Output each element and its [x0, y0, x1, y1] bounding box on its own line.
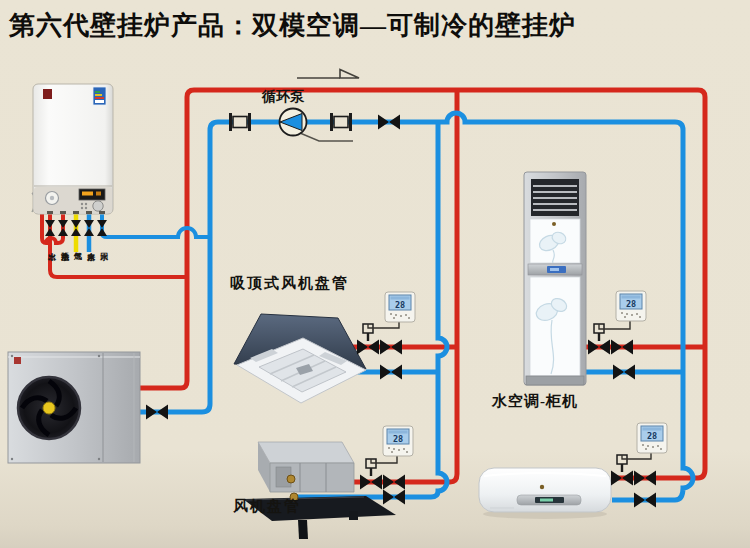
- floor-unit-label: 水空调-柜机: [492, 392, 578, 411]
- thermostat-fan-coil: 28: [383, 426, 413, 456]
- boiler-port-valves: [45, 220, 107, 236]
- thermostat-cassette: 28: [385, 292, 415, 322]
- thermostat-wall-unit: 28: [637, 423, 667, 453]
- thermostat-temp: 28: [626, 299, 636, 309]
- outdoor-unit-logo: [14, 357, 21, 364]
- thermostat-temp: 28: [647, 431, 657, 441]
- fan-coil-label: 风机盘管: [233, 497, 301, 516]
- flow-direction-arrow: [297, 70, 359, 79]
- wall-mounted-ac-unit: [479, 468, 611, 519]
- wall-hung-boiler: [33, 84, 113, 214]
- outdoor-heat-pump-unit: [8, 352, 140, 463]
- pump-label: 循环泵: [262, 88, 304, 106]
- flange-fitting: [332, 113, 351, 131]
- circulation-pump-group: [231, 109, 354, 142]
- energy-label: [93, 87, 106, 105]
- ceiling-cassette-unit: [234, 314, 366, 403]
- ducted-fan-coil-unit: [243, 442, 396, 539]
- floor-standing-ac-unit: [524, 172, 586, 385]
- flange-fitting: [231, 113, 250, 131]
- hot-water-pipes: [42, 90, 705, 482]
- wall-unit-logo: [540, 485, 544, 489]
- boiler-display: [79, 189, 105, 200]
- hot-pipe-fitting: [287, 475, 295, 483]
- boiler-logo: [43, 89, 52, 99]
- fan: [18, 377, 80, 439]
- pump-icon: [280, 109, 307, 136]
- boiler-knob: [93, 201, 103, 211]
- hvac-system-diagram: 第六代壁挂炉产品：双模空调—可制冷的壁挂炉: [0, 0, 750, 548]
- cassette-label: 吸顶式风机盘管: [230, 274, 349, 293]
- thermostat-temp: 28: [395, 300, 405, 310]
- thermostat-floor-unit: 28: [616, 291, 646, 321]
- piping-diagram-canvas: 28 28 28 28: [0, 0, 750, 548]
- thermostat-temp: 28: [393, 434, 403, 444]
